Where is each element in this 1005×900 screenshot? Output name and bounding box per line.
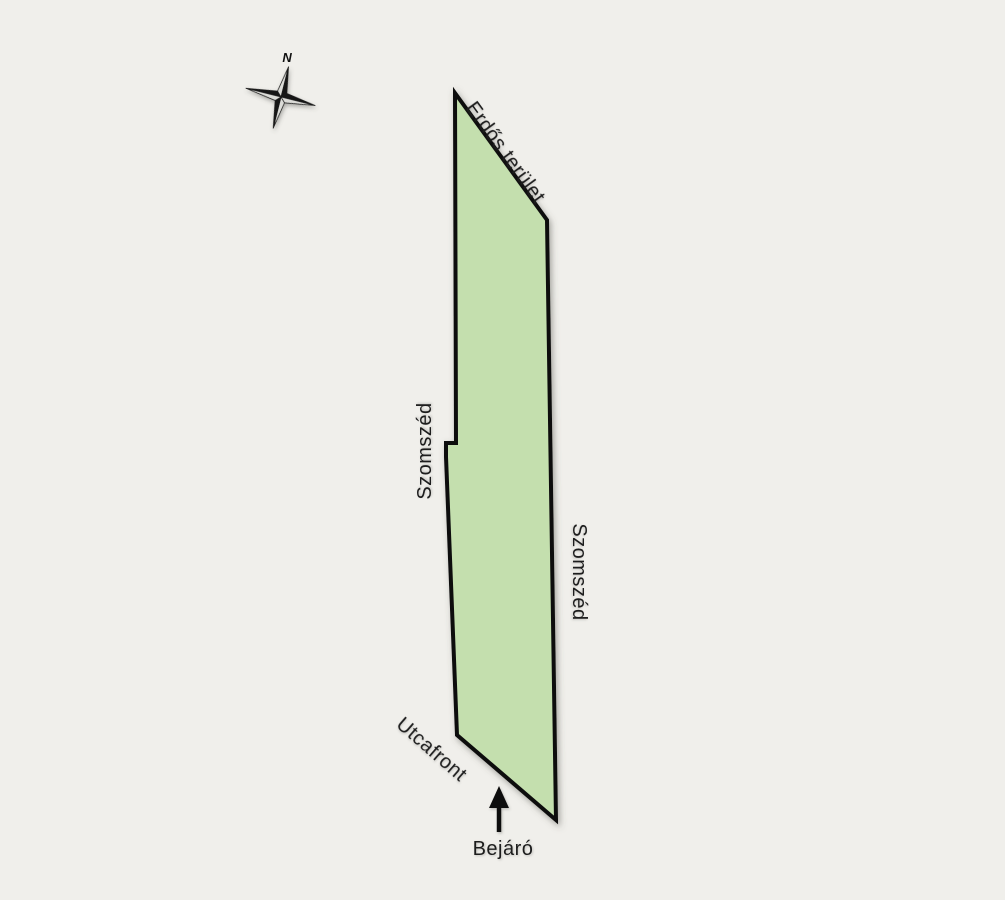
site-plan-svg: N Erdős terület Szomszéd Szomszéd Utcafr… [0, 0, 1005, 900]
neighbor-left-label: Szomszéd [414, 402, 436, 499]
neighbor-right-label: Szomszéd [568, 523, 590, 620]
north-label: N [282, 50, 292, 65]
entrance-label: Bejáró [473, 838, 534, 860]
site-plan-canvas: N Erdős terület Szomszéd Szomszéd Utcafr… [0, 0, 1005, 900]
